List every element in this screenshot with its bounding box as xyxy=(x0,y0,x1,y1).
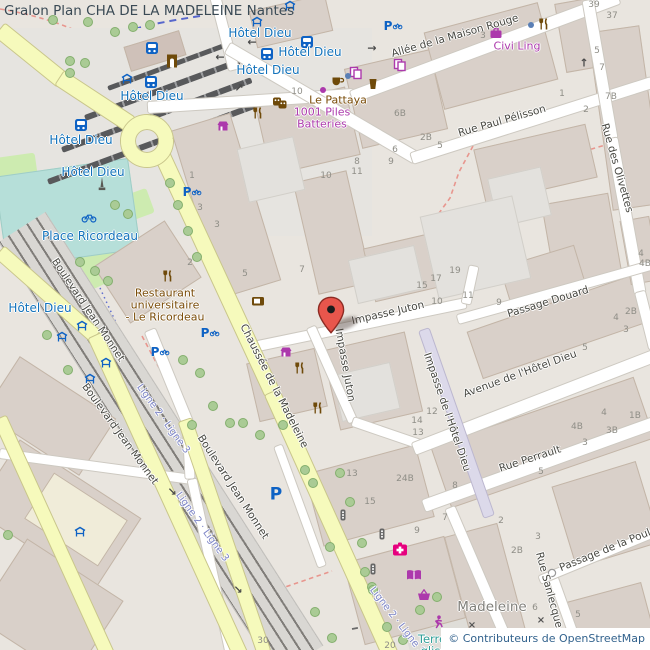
house-number: 3 xyxy=(623,325,629,335)
parking-bike-icon: P xyxy=(201,327,220,339)
oneway-arrow-icon: ↘ xyxy=(233,585,242,596)
transit-stop-label: Hôtel Dieu xyxy=(8,301,71,315)
tree-icon xyxy=(165,178,175,188)
house-number: 11 xyxy=(351,167,362,177)
tree-icon xyxy=(42,330,52,340)
tree-icon xyxy=(360,567,370,577)
tree-icon xyxy=(238,418,248,428)
house-number: 8 xyxy=(452,481,458,491)
house-number: 17 xyxy=(430,274,441,284)
library-icon xyxy=(406,569,422,581)
transit-stop-label: Hôtel Dieu xyxy=(278,45,341,59)
house-number: 3 xyxy=(480,31,486,41)
level-crossing-icon: × xyxy=(537,616,545,626)
screen-icon xyxy=(252,297,265,308)
tree-icon xyxy=(187,420,197,430)
house-number: 1 xyxy=(189,171,195,181)
traffic-signal-icon xyxy=(371,564,376,575)
oneway-arrow-icon: → xyxy=(367,43,376,54)
house-number: 7B xyxy=(605,92,617,102)
tree-icon xyxy=(415,605,425,615)
house-number: 5 xyxy=(538,467,544,477)
theatre-icon xyxy=(273,97,288,109)
bus-icon xyxy=(146,42,159,55)
place-label: Place Ricordeau xyxy=(42,229,138,243)
house-number: 2 xyxy=(187,258,193,268)
tree-icon xyxy=(255,430,265,440)
house-number: 4 xyxy=(638,249,644,259)
tree-icon xyxy=(327,633,337,643)
house-number: 5 xyxy=(242,269,248,279)
house-number: 19 xyxy=(449,266,460,276)
page-title: Gralon Plan CHA DE LA MADELEINE Nantes xyxy=(4,3,294,19)
poi-dot-blue-icon xyxy=(528,22,535,29)
tree-icon xyxy=(208,401,218,411)
house-number: 2 xyxy=(498,516,504,526)
osm-attribution-link[interactable]: © Contributeurs de OpenStreetMap xyxy=(441,628,650,650)
house-number: 2B xyxy=(420,133,432,143)
restaurant-icon xyxy=(294,362,306,375)
tree-icon xyxy=(65,68,75,78)
house-number: 1B xyxy=(629,411,641,421)
house-number: 39 xyxy=(588,0,599,10)
house-number: 20 xyxy=(384,641,395,650)
tree-icon xyxy=(3,530,13,540)
house-number: 7 xyxy=(299,265,305,275)
tree-icon xyxy=(75,257,85,267)
tram-shelter-icon xyxy=(76,321,88,332)
restaurant-icon xyxy=(312,402,324,415)
house-number: 3 xyxy=(582,438,588,448)
tree-icon xyxy=(65,56,75,66)
house-number: 13 xyxy=(412,428,423,438)
shop-icon xyxy=(280,347,293,358)
transit-stop-label: Hôtel Dieu xyxy=(120,89,183,103)
beer-icon xyxy=(369,78,378,90)
tram-shelter-icon xyxy=(100,358,112,369)
tram-shelter-icon xyxy=(74,527,86,538)
bicycle-icon xyxy=(82,213,97,223)
cafe-icon xyxy=(332,76,345,86)
house-number: 3 xyxy=(214,220,220,230)
house-number: 9 xyxy=(414,526,420,536)
traffic-signal-icon xyxy=(341,510,346,521)
house-number: 11 xyxy=(462,291,473,301)
place-label: - Le Ricordeau xyxy=(126,311,205,324)
place-label: Civi Ling xyxy=(494,40,541,53)
tree-icon xyxy=(145,20,155,30)
doorway-icon xyxy=(167,55,177,68)
house-number: 2 xyxy=(583,105,589,115)
house-number: 4 xyxy=(613,313,619,323)
poi-dot-icon xyxy=(320,87,327,94)
house-number: 2B xyxy=(511,546,523,556)
tree-icon xyxy=(335,468,345,478)
tree-icon xyxy=(103,276,113,286)
tree-icon xyxy=(357,538,367,548)
roundabout xyxy=(121,115,173,167)
bus-icon xyxy=(261,48,274,61)
tree-icon xyxy=(90,266,100,276)
tram-shelter-icon xyxy=(56,332,68,343)
shop-icon xyxy=(217,121,230,132)
house-number: 10 xyxy=(431,297,442,307)
tree-icon xyxy=(178,355,188,365)
tree-icon xyxy=(110,200,120,210)
pharmacy-icon xyxy=(393,542,408,556)
house-number: 37 xyxy=(606,11,617,21)
parking-bike-icon: P xyxy=(183,186,202,198)
bus-icon xyxy=(145,76,158,89)
house-number: 9 xyxy=(496,298,502,308)
bus-icon xyxy=(75,119,88,132)
transit-stop-label: Hôtel Dieu xyxy=(49,133,112,147)
place-label: Batteries xyxy=(297,118,347,131)
house-number: 7 xyxy=(442,513,448,523)
tram-shelter-icon xyxy=(121,74,133,85)
house-number: 1 xyxy=(559,89,565,99)
house-number: 5 xyxy=(437,141,443,151)
tree-icon xyxy=(310,607,320,617)
house-number: 12 xyxy=(426,407,437,417)
house-number: 2B xyxy=(625,307,637,317)
house-number: 8 xyxy=(354,157,360,167)
poi-dot-blue-icon xyxy=(345,73,352,80)
tree-icon xyxy=(308,478,318,488)
oneway-arrow-icon: ← xyxy=(215,52,224,63)
house-number: 9 xyxy=(388,157,394,167)
tree-icon xyxy=(345,497,355,507)
house-number: 10 xyxy=(320,171,331,181)
parking-icon: P xyxy=(270,487,282,504)
tree-icon xyxy=(110,27,120,37)
house-number: 6B xyxy=(394,109,406,119)
house-number: 30 xyxy=(257,636,268,646)
tree-icon xyxy=(325,542,335,552)
place-label: Madeleine xyxy=(457,599,526,615)
tree-icon xyxy=(183,226,193,236)
house-number: 15 xyxy=(416,281,427,291)
house-number: 24B xyxy=(396,474,414,484)
tree-icon xyxy=(192,252,202,262)
sports-icon xyxy=(432,615,444,629)
tree-icon xyxy=(128,22,138,32)
house-number: 6 xyxy=(532,603,538,613)
transit-stop-label: Hôtel Dieu xyxy=(228,26,291,40)
tree-icon xyxy=(195,368,205,378)
tree-icon xyxy=(63,365,73,375)
restaurant-icon xyxy=(162,270,174,283)
house-number: 7 xyxy=(599,63,605,73)
tree-icon xyxy=(432,592,442,602)
transit-stop-label: Hôtel Dieu xyxy=(236,63,299,77)
house-number: 5 xyxy=(582,343,588,353)
supermarket-icon xyxy=(417,589,431,601)
tree-icon xyxy=(123,209,133,219)
oneway-arrow-icon: ↑ xyxy=(579,58,588,69)
traffic-signal-icon xyxy=(380,529,385,540)
house-number: 15 xyxy=(364,497,375,507)
transit-stop-label: Hôtel Dieu xyxy=(61,165,124,179)
tree-icon xyxy=(80,58,90,68)
copyshop-icon xyxy=(394,59,407,72)
restaurant-icon xyxy=(538,18,550,31)
house-number: 3 xyxy=(197,203,203,213)
monument-icon xyxy=(98,177,107,191)
oneway-arrow-icon: ↗ xyxy=(234,83,243,94)
parking-bike-icon: P xyxy=(384,20,403,32)
house-number: 3 xyxy=(535,532,541,542)
house-number: 3B xyxy=(606,426,618,436)
house-number: 4B xyxy=(639,259,650,269)
tree-icon xyxy=(225,418,235,428)
house-number: 4 xyxy=(601,408,607,418)
parking-bike-icon: P xyxy=(151,346,170,358)
house-number: 5 xyxy=(575,610,581,620)
location-marker-icon[interactable] xyxy=(317,296,345,338)
map-canvas[interactable]: PPPPP××←←↗→↑↘↘Allée de la Maison RougeRu… xyxy=(0,0,650,650)
house-number: 13 xyxy=(346,469,357,479)
tree-icon xyxy=(300,465,310,475)
house-number: 4B xyxy=(571,422,583,432)
tree-icon xyxy=(173,200,183,210)
house-number: 10 xyxy=(291,87,302,97)
tree-icon xyxy=(382,622,392,632)
house-number: 14 xyxy=(411,416,422,426)
house-number: 6 xyxy=(392,145,398,155)
restaurant-icon xyxy=(252,107,264,120)
house-number: 5 xyxy=(594,46,600,56)
